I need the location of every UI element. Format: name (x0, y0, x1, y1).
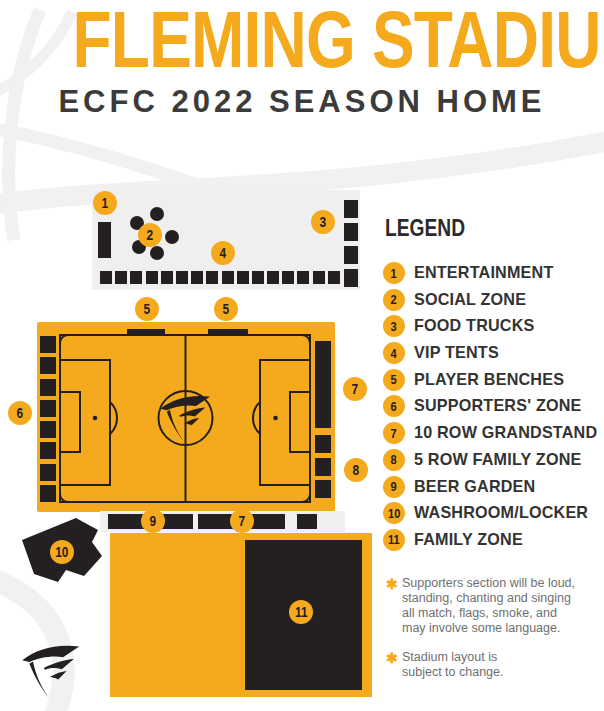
legend-badge: 6 (383, 395, 405, 417)
south-small-stand (297, 514, 317, 529)
legend-badge: 1 (383, 262, 405, 284)
legend-badge: 4 (383, 342, 405, 364)
legend-item-family-5row: 8 5 ROW FAMILY ZONE (383, 449, 603, 471)
social-table (165, 230, 179, 244)
map-badge-entertainment: 1 (93, 191, 117, 215)
legend-item-player-benches: 5 PLAYER BENCHES (383, 369, 603, 391)
field-area (37, 322, 335, 512)
social-table (150, 207, 164, 221)
legend-badge: 3 (383, 315, 405, 337)
page-subtitle-wrap: ECFC 2022 SEASON HOME (0, 84, 604, 120)
note-text: Stadium layout is subject to change. (402, 650, 503, 680)
legend-label: SOCIAL ZONE (414, 290, 526, 310)
map-badge-family-5row: 8 (344, 458, 368, 482)
page-title: FLEMING STADIUM (73, 4, 604, 76)
legend-label: PLAYER BENCHES (414, 370, 564, 390)
legend-item-grandstand: 7 10 ROW GRANDSTAND (383, 422, 603, 444)
legend-badge: 5 (383, 369, 405, 391)
legend-item-social-zone: 2 SOCIAL ZONE (383, 289, 603, 311)
vip-tent-row (100, 271, 340, 284)
penalty-spot (273, 416, 278, 421)
family-5row-stand (315, 435, 331, 498)
legend-item-family-zone: 11 FAMILY ZONE (383, 529, 603, 551)
legend-badge: 10 (383, 502, 405, 524)
legend-heading-wrap: LEGEND (385, 214, 485, 242)
legend-badge: 7 (383, 422, 405, 444)
family-zone (110, 533, 372, 697)
penalty-spot (93, 416, 98, 421)
page-subtitle: ECFC 2022 SEASON HOME (58, 84, 545, 120)
legend-label: BEER GARDEN (414, 477, 535, 497)
map-badge-food-trucks: 3 (311, 210, 335, 234)
legend-item-entertainment: 1 ENTERTAINMENT (383, 262, 603, 284)
map-badge-washroom: 10 (50, 540, 74, 564)
note-supporters: ✱ Supporters section will be loud, stand… (386, 576, 591, 636)
entertainment-stage (98, 222, 111, 258)
legend-item-washroom: 10 WASHROOM/LOCKER (383, 502, 603, 524)
asterisk-icon: ✱ (386, 650, 400, 680)
note-text: Supporters section will be loud, standin… (402, 576, 575, 636)
food-truck-column (344, 200, 358, 287)
map-badge-family-zone: 11 (289, 600, 313, 624)
legend-item-supporters-zone: 6 SUPPORTERS' ZONE (383, 395, 603, 417)
map-badge-beer-garden: 9 (141, 509, 165, 533)
asterisk-icon: ✱ (386, 576, 400, 636)
map-badge-social-zone: 2 (138, 223, 162, 247)
map-badge-bench-right: 5 (214, 297, 238, 321)
social-table (150, 246, 164, 260)
legend-heading: LEGEND (385, 214, 465, 242)
legend-item-vip-tents: 4 VIP TENTS (383, 342, 603, 364)
legend-label: VIP TENTS (414, 343, 499, 363)
legend-badge: 9 (383, 476, 405, 498)
grandstand-10row (315, 341, 331, 428)
legend-label: FAMILY ZONE (414, 530, 523, 550)
legend-item-food-trucks: 3 FOOD TRUCKS (383, 315, 603, 337)
map-badge-grandstand-south: 7 (230, 509, 254, 533)
map-badge-supporters-zone: 6 (8, 401, 32, 425)
club-logo-icon (20, 641, 82, 701)
stadium-map-poster: FLEMING STADIUM ECFC 2022 SEASON HOME (0, 0, 604, 711)
map-badge-vip-tents: 4 (211, 241, 235, 265)
map-badge-grandstand-east: 7 (343, 377, 367, 401)
entertainment-zone (92, 190, 360, 290)
legend-badge: 11 (383, 529, 405, 551)
map-badge-bench-left: 5 (135, 297, 159, 321)
legend-label: ENTERTAINMENT (414, 263, 553, 283)
legend-list: 1 ENTERTAINMENT 2 SOCIAL ZONE 3 FOOD TRU… (383, 262, 603, 551)
legend-label: 10 ROW GRANDSTAND (414, 423, 597, 443)
legend-label: WASHROOM/LOCKER (414, 503, 588, 523)
legend-badge: 8 (383, 449, 405, 471)
legend-label: SUPPORTERS' ZONE (414, 396, 582, 416)
note-layout-change: ✱ Stadium layout is subject to change. (386, 650, 591, 680)
legend-item-beer-garden: 9 BEER GARDEN (383, 476, 603, 498)
legend-badge: 2 (383, 289, 405, 311)
page-title-wrap: FLEMING STADIUM (0, 4, 604, 76)
legend-label: 5 ROW FAMILY ZONE (414, 450, 581, 470)
south-strip (100, 511, 345, 532)
legend-label: FOOD TRUCKS (414, 316, 535, 336)
